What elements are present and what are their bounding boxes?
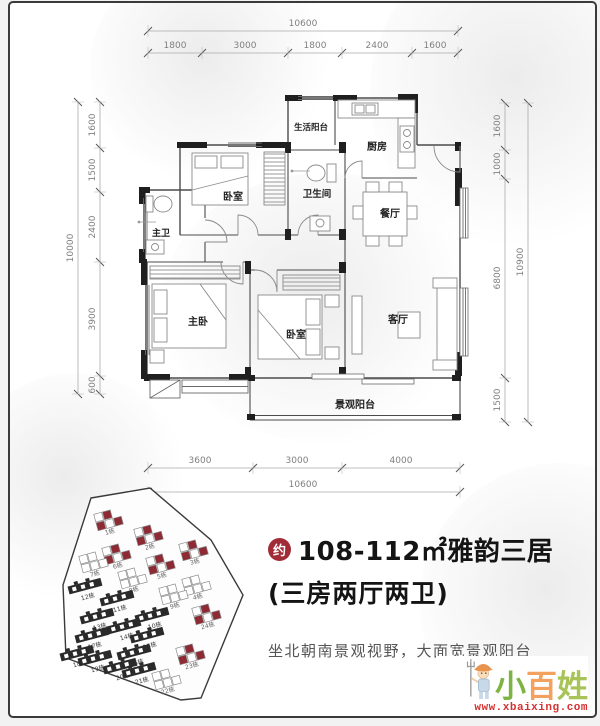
dimension-label: 10000 [66,233,76,262]
room-label-bedroom-middle: 卧室 [286,328,306,341]
dimension-label: 6800 [493,266,503,289]
dimension-label: 10600 [289,19,318,29]
listing-subtitle: (三房两厅两卫) [268,574,588,610]
room-label-master-bedroom: 主卧 [188,315,208,328]
room-label-dining: 餐厅 [379,207,400,220]
dimension-label: 1000 [493,152,503,175]
dimension-label: 3000 [286,456,309,466]
dimension-label: 10600 [289,480,318,490]
dimension-label: 600 [88,376,98,393]
dimension-label: 10900 [516,247,526,276]
floor-plan: 1060018003000180024001600360030004000106… [8,1,597,520]
farmer-mascot-icon [465,656,495,702]
room-label-view-balcony: 景观阳台 [335,398,375,411]
listing-info: 约 108-112㎡雅韵三居 (三房两厅两卫) 坐北朝南景观视野，大面宽景观阳台 [268,531,588,661]
approx-badge: 约 [268,538,291,561]
dimension-label: 1800 [164,41,187,51]
listing-title: 108-112㎡雅韵三居 [298,531,553,568]
dimension-label: 2400 [88,215,98,238]
room-label-living: 客厅 [387,313,408,326]
brand-char: 百 [526,672,557,702]
room-label-bedroom-north: 卧室 [223,190,243,203]
room-label-service-balcony: 生活阳台 [294,122,329,133]
room-label-kitchen: 厨房 [367,140,387,153]
dimension-label: 1600 [424,41,447,51]
site-plan: 1栋2栋3栋6栋5栋7栋8栋4栋9栋12栋11栋13栋10栋14栋17栋15栋1… [50,485,264,717]
room-label-bathroom: 卫生间 [303,188,332,200]
dimension-label: 1800 [304,41,327,51]
dimension-label: 3900 [88,307,98,330]
watermark: 小 百 姓 www.xbaixing.com [436,656,588,714]
watermark-url: www.xbaixing.com [436,702,588,714]
dimension-label: 1500 [493,388,503,411]
dimension-label: 1600 [493,114,503,137]
dimension-lines: 1060018003000180024001600360030004000106… [66,19,534,498]
dimension-label: 1600 [88,113,98,136]
dimension-label: 2400 [366,41,389,51]
room-label-master-bath: 主卫 [152,227,170,239]
photo-frame: 1060018003000180024001600360030004000106… [8,1,597,718]
brand-char: 姓 [557,672,588,702]
dimension-label: 3600 [189,456,212,466]
dimension-label: 4000 [390,456,413,466]
dimension-label: 1500 [88,158,98,181]
brand-char: 小 [495,672,526,702]
dimension-label: 3000 [234,41,257,51]
